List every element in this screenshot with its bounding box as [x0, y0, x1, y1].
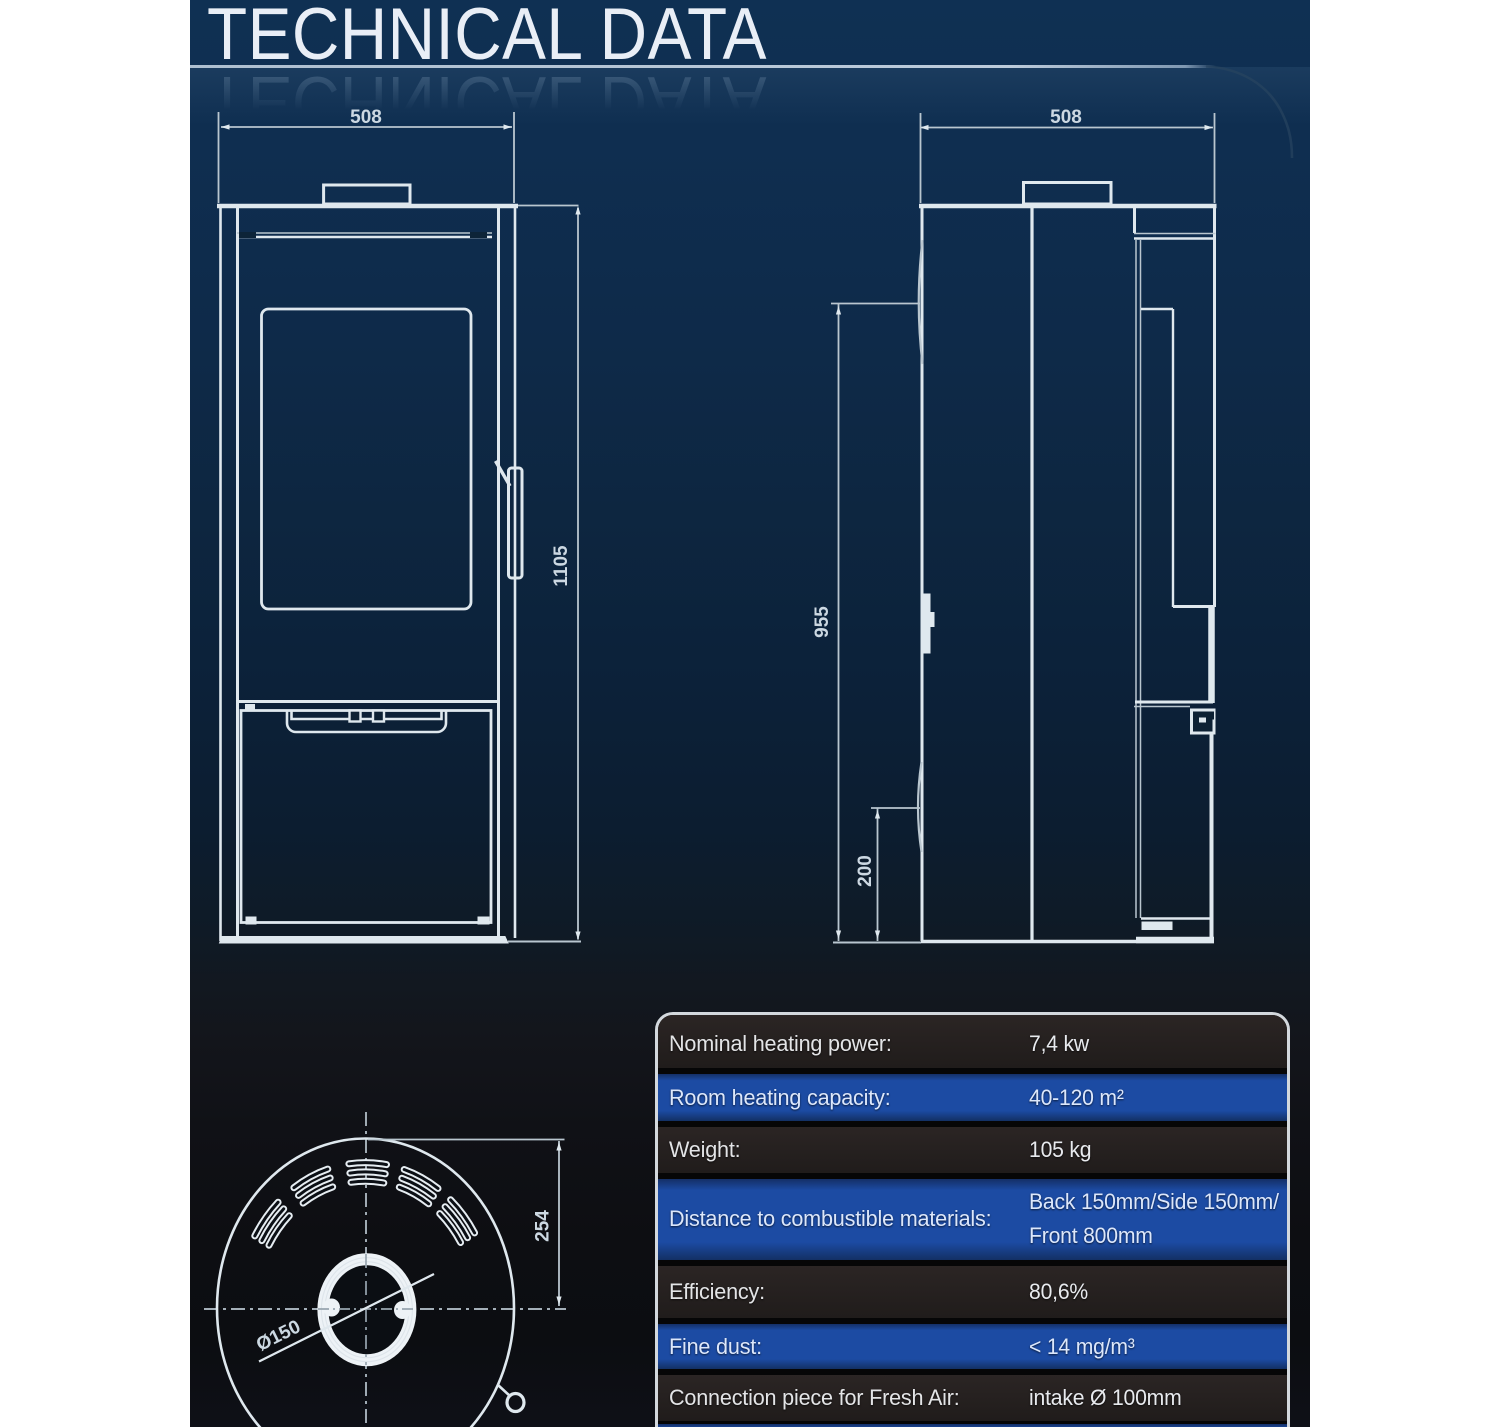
svg-text:508: 508: [1050, 107, 1082, 128]
svg-text:1105: 1105: [551, 545, 572, 587]
svg-text:508: 508: [350, 107, 382, 128]
svg-text:955: 955: [812, 606, 833, 638]
svg-text:Ø150: Ø150: [253, 1316, 304, 1356]
svg-text:200: 200: [855, 855, 876, 887]
svg-text:254: 254: [533, 1210, 554, 1242]
